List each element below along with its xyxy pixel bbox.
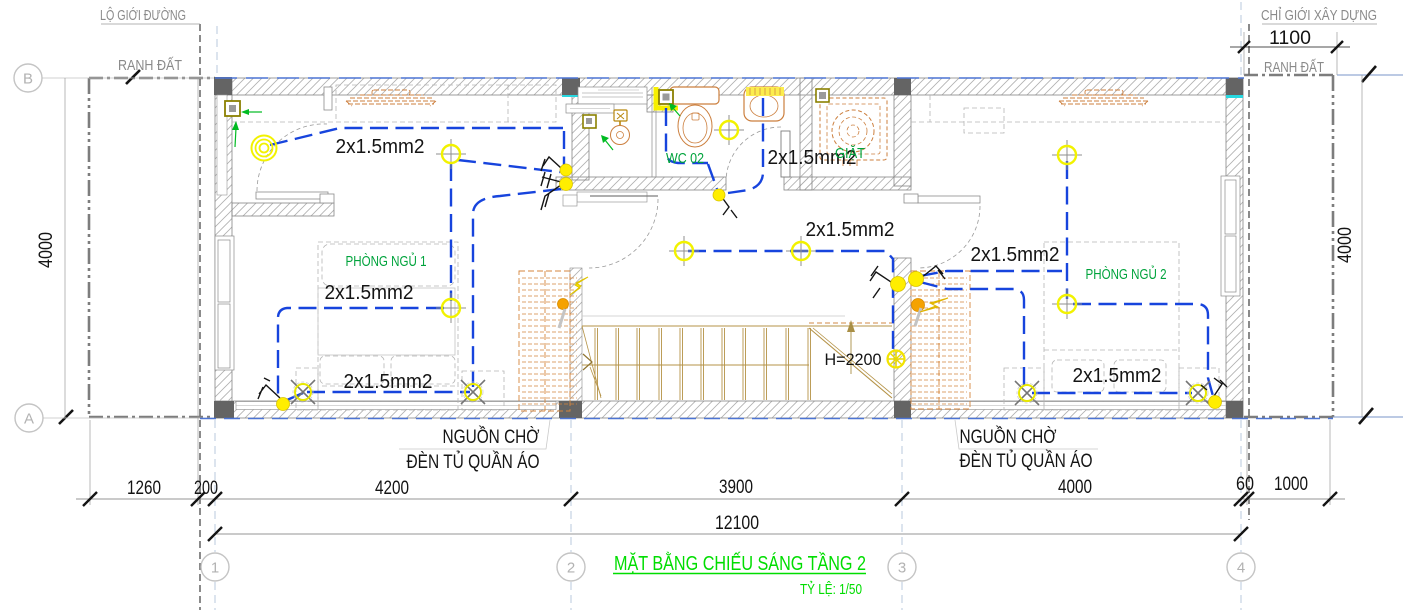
svg-text:3900: 3900: [719, 477, 753, 498]
svg-text:2x1.5mm2: 2x1.5mm2: [971, 244, 1060, 266]
svg-text:PHÒNG NGỦ 2: PHÒNG NGỦ 2: [1086, 265, 1167, 283]
svg-text:NGUỒN CHỜ: NGUỒN CHỜ: [443, 426, 540, 448]
svg-text:60: 60: [1236, 474, 1254, 495]
svg-text:RANH ĐẤT: RANH ĐẤT: [118, 57, 182, 74]
svg-text:MẶT BẰNG CHIẾU SÁNG TẦNG 2: MẶT BẰNG CHIẾU SÁNG TẦNG 2: [614, 551, 866, 575]
svg-text:PHÒNG NGỦ 1: PHÒNG NGỦ 1: [346, 252, 427, 270]
svg-text:ĐÈN TỦ QUẦN ÁO: ĐÈN TỦ QUẦN ÁO: [407, 451, 540, 473]
svg-text:2x1.5mm2: 2x1.5mm2: [344, 371, 433, 393]
svg-text:H=2200: H=2200: [825, 350, 882, 369]
svg-text:B: B: [23, 71, 33, 88]
svg-text:4000: 4000: [36, 232, 57, 268]
svg-text:A: A: [24, 411, 34, 428]
svg-text:2: 2: [567, 560, 575, 577]
svg-text:2x1.5mm2: 2x1.5mm2: [336, 136, 425, 158]
svg-text:WC 02: WC 02: [666, 151, 704, 167]
svg-text:12100: 12100: [715, 513, 759, 534]
svg-text:2x1.5mm2: 2x1.5mm2: [325, 282, 414, 304]
svg-text:4000: 4000: [1058, 477, 1092, 498]
svg-text:NGUỒN CHỜ: NGUỒN CHỜ: [960, 426, 1057, 448]
svg-text:4000: 4000: [1335, 227, 1356, 263]
svg-text:2x1.5mm2: 2x1.5mm2: [806, 219, 895, 241]
svg-text:4: 4: [1237, 560, 1245, 577]
svg-text:3: 3: [898, 560, 906, 577]
svg-text:GIẶT: GIẶT: [835, 145, 865, 162]
svg-text:TỶ LỆ: 1/50: TỶ LỆ: 1/50: [800, 581, 862, 598]
svg-text:ĐÈN TỦ QUẦN ÁO: ĐÈN TỦ QUẦN ÁO: [960, 450, 1093, 472]
svg-text:1: 1: [211, 560, 219, 577]
svg-text:4200: 4200: [375, 478, 409, 499]
svg-text:200: 200: [194, 478, 218, 499]
svg-text:LỘ GIỚI ĐƯỜNG: LỘ GIỚI ĐƯỜNG: [100, 7, 186, 24]
svg-text:1100: 1100: [1269, 28, 1311, 49]
svg-text:1000: 1000: [1274, 474, 1308, 495]
svg-text:RANH ĐẤT: RANH ĐẤT: [1264, 59, 1324, 76]
svg-text:2x1.5mm2: 2x1.5mm2: [1073, 365, 1162, 387]
svg-text:1260: 1260: [127, 478, 161, 499]
svg-text:CHỈ GIỚI XÂY DỰNG: CHỈ GIỚI XÂY DỰNG: [1261, 7, 1377, 24]
